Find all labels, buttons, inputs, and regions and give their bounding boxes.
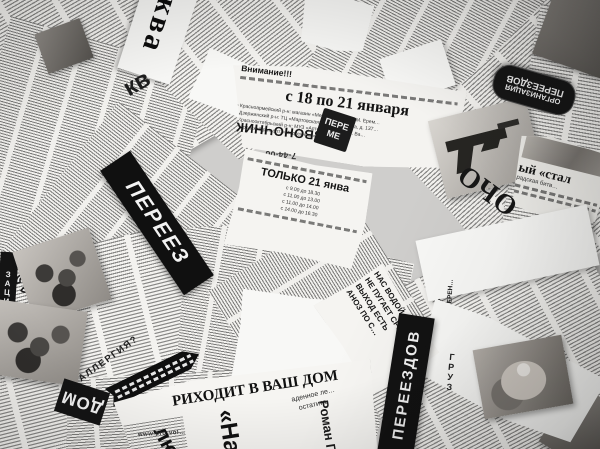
newspaper-collage-photo: осква кв Внимание!!! с 18 по 21 января •… [0,0,600,449]
vertical-text-roman: Роман Г [316,399,339,449]
people-photo [0,299,88,386]
